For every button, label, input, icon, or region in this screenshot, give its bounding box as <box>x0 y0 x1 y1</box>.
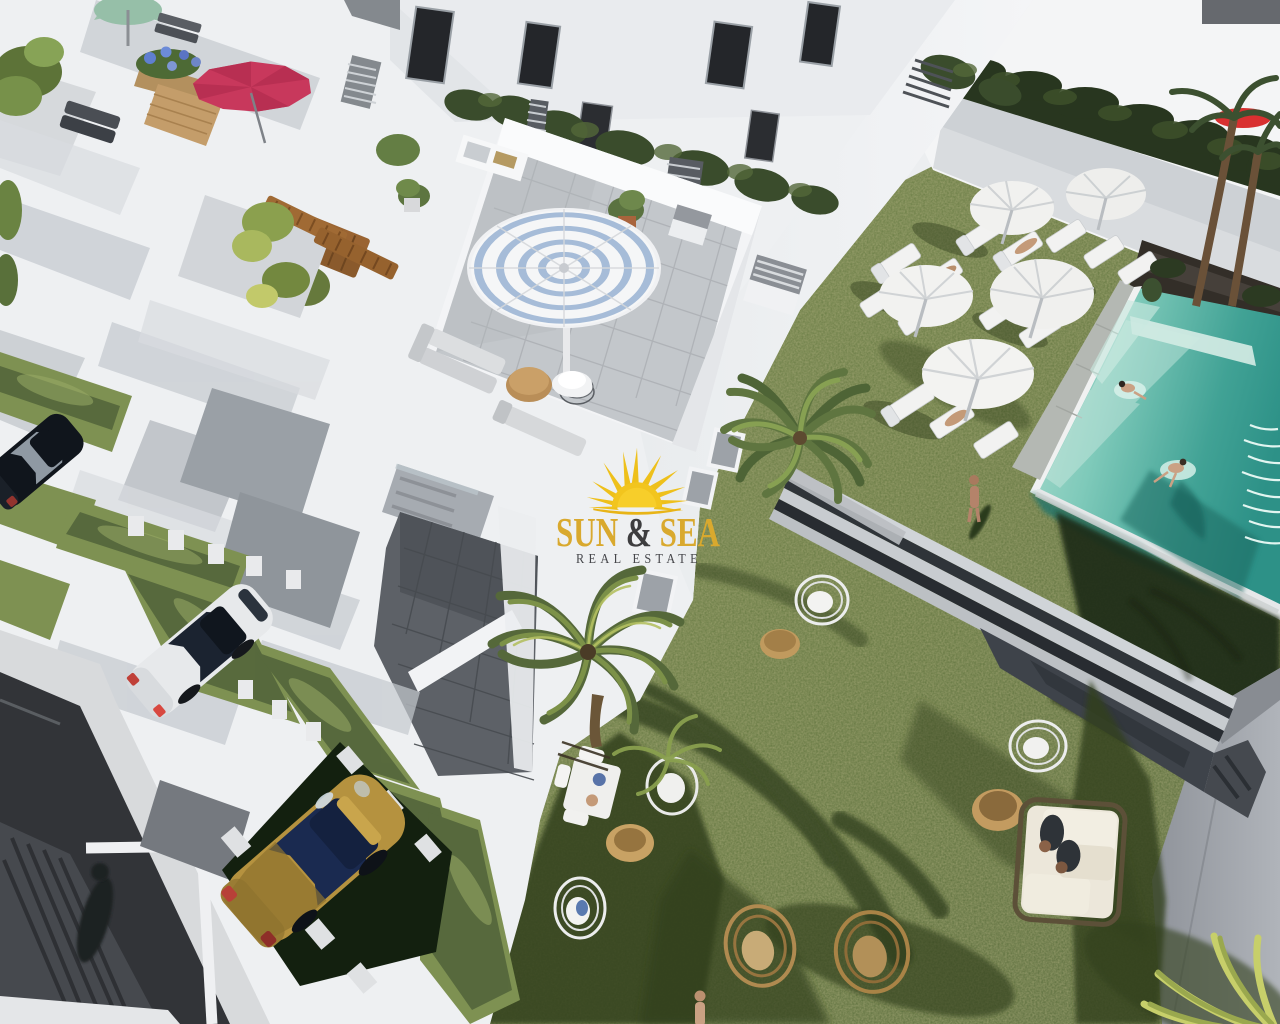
svg-text:REAL ESTATE: REAL ESTATE <box>576 552 702 567</box>
svg-text:SUN & SEA: SUN & SEA <box>556 509 720 555</box>
